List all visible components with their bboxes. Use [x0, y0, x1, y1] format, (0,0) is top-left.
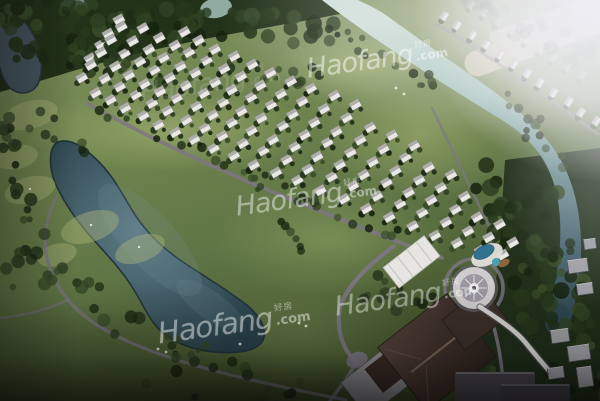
villa: [115, 21, 128, 33]
tree: [292, 235, 299, 242]
tree: [114, 41, 120, 47]
tree: [264, 87, 268, 91]
condo: [576, 366, 594, 388]
villa: [148, 64, 161, 76]
tree: [254, 131, 259, 136]
tree: [306, 15, 322, 31]
tree: [512, 201, 522, 211]
river: [322, 0, 581, 330]
tree: [228, 71, 232, 75]
riverside-villa: [481, 39, 491, 50]
tree: [133, 312, 146, 325]
riverside-villa: [493, 16, 503, 27]
villa: [311, 151, 324, 163]
villa: [133, 55, 146, 67]
tree: [574, 274, 591, 291]
tree: [85, 52, 97, 64]
tree: [88, 95, 94, 101]
tree: [386, 150, 392, 156]
tree: [465, 7, 471, 13]
tree: [108, 69, 114, 75]
tree: [288, 390, 296, 398]
villa: [461, 225, 474, 237]
tree: [189, 356, 200, 367]
tree: [172, 79, 178, 85]
villa: [408, 139, 421, 151]
villa: [197, 87, 210, 99]
watermark-suffix: 好房.com: [247, 61, 282, 86]
tree: [297, 247, 305, 255]
watermark-suffix: 好房.com: [343, 175, 378, 200]
road-junction: [344, 349, 370, 372]
walkway-bridge: [480, 307, 552, 374]
villa: [236, 137, 249, 149]
tree: [124, 29, 129, 34]
villa: [425, 194, 438, 206]
tree: [540, 267, 557, 284]
villa: [286, 108, 299, 120]
tree: [388, 173, 394, 179]
riverside-villa: [467, 30, 477, 41]
tree: [558, 318, 572, 332]
tree: [197, 130, 204, 137]
tree: [208, 52, 213, 57]
tree: [422, 292, 430, 300]
tree: [177, 141, 186, 150]
tree: [585, 40, 598, 53]
tree: [263, 75, 269, 81]
road-plaza-ring: [445, 259, 503, 317]
tree: [550, 185, 565, 200]
villa: [349, 99, 362, 111]
tree: [112, 36, 116, 40]
villa: [208, 43, 221, 55]
tree: [39, 228, 51, 240]
pool-garden: [467, 238, 511, 272]
watermark-cn: 好房: [442, 275, 475, 287]
tree: [329, 134, 335, 140]
tree: [568, 342, 577, 351]
tree: [308, 137, 313, 142]
villa: [264, 99, 277, 111]
tree: [352, 142, 359, 149]
riverside-villa: [535, 77, 545, 88]
condo: [550, 328, 570, 343]
tree: [563, 104, 569, 110]
villa: [291, 174, 304, 186]
tree: [487, 224, 505, 242]
tree: [74, 80, 80, 86]
tree: [506, 33, 511, 38]
tree: [0, 9, 10, 23]
tree: [477, 360, 488, 371]
tree: [339, 120, 346, 127]
villa: [109, 60, 122, 72]
tree: [525, 24, 534, 33]
tree: [359, 35, 366, 42]
tree: [167, 341, 176, 350]
tree: [146, 118, 151, 123]
tree: [497, 375, 510, 388]
tree: [364, 292, 371, 299]
tree: [488, 13, 502, 27]
tree: [128, 111, 132, 115]
riverside-villa: [439, 10, 449, 21]
tree: [339, 134, 344, 139]
tree: [168, 30, 184, 46]
tree: [403, 204, 409, 210]
tree: [162, 80, 169, 87]
tree: [521, 75, 527, 81]
tree: [19, 5, 32, 18]
tree: [23, 0, 34, 7]
tree: [523, 127, 530, 134]
tree: [2, 132, 12, 142]
tree: [481, 2, 493, 14]
tree: [187, 351, 195, 359]
tree: [0, 124, 10, 136]
tree: [366, 165, 371, 170]
tree: [485, 365, 496, 376]
tree: [50, 135, 58, 143]
tree: [470, 183, 482, 195]
tree: [472, 252, 479, 259]
tree: [129, 48, 142, 61]
tree: [118, 44, 133, 59]
tree: [62, 6, 71, 15]
tree: [493, 381, 500, 388]
tree: [435, 310, 442, 317]
villa: [402, 186, 415, 198]
tree: [539, 292, 555, 308]
tree: [496, 257, 502, 263]
tree: [88, 45, 99, 56]
tree: [158, 5, 169, 16]
tree: [197, 143, 207, 153]
tree: [28, 40, 41, 53]
tree: [405, 228, 412, 235]
watermark-suffix: 好房.com: [414, 37, 449, 62]
tree: [199, 76, 203, 80]
figure-speck: [157, 348, 160, 351]
tree: [452, 267, 465, 280]
villa: [266, 134, 279, 146]
tree: [269, 175, 274, 180]
tree: [564, 270, 577, 283]
villa: [444, 169, 457, 181]
tree: [192, 53, 197, 58]
villa: [138, 78, 151, 90]
tree: [390, 185, 395, 190]
tree: [253, 120, 260, 127]
tree: [377, 50, 386, 59]
villa: [179, 80, 192, 92]
watermark-suffix: 好房.com: [273, 300, 311, 327]
tree: [127, 29, 140, 42]
tree: [290, 161, 295, 166]
figure-speck: [395, 87, 398, 90]
tree: [77, 138, 87, 148]
tree: [241, 169, 248, 176]
tree: [0, 143, 9, 154]
villa: [340, 112, 353, 124]
villa: [168, 39, 181, 51]
tree: [103, 42, 109, 48]
villa-band: [74, 14, 520, 264]
tree: [95, 282, 104, 291]
tree: [369, 210, 375, 216]
villa: [330, 125, 343, 137]
tree: [334, 32, 340, 38]
tree: [267, 7, 280, 20]
tree: [144, 105, 151, 112]
tree: [153, 135, 160, 142]
villa: [180, 114, 193, 126]
tree: [69, 55, 77, 63]
tree: [207, 85, 213, 91]
tree: [296, 77, 306, 87]
tree: [502, 225, 507, 230]
tree: [248, 174, 256, 182]
riverside-villa: [495, 49, 505, 60]
tree: [535, 15, 545, 25]
tree: [536, 115, 544, 123]
tree: [399, 172, 404, 177]
tree: [118, 68, 124, 74]
tree: [30, 246, 44, 260]
villa: [370, 190, 383, 202]
tree: [209, 363, 219, 373]
tree: [103, 102, 110, 109]
tree: [199, 108, 204, 113]
tree: [239, 362, 251, 374]
villa: [450, 237, 463, 249]
tree: [178, 88, 185, 95]
tree: [303, 29, 318, 44]
tree: [125, 310, 138, 323]
riverside-villa: [591, 116, 600, 127]
tree: [480, 46, 486, 52]
tree: [307, 125, 313, 131]
tree: [557, 268, 566, 277]
riverside-villa: [466, 0, 476, 10]
tree: [252, 87, 259, 94]
tree: [248, 17, 258, 27]
clubhouse: [341, 236, 570, 401]
tree: [164, 332, 172, 340]
tree: [401, 195, 407, 201]
tree: [454, 175, 460, 181]
tree: [429, 81, 438, 90]
tree: [288, 67, 298, 77]
tree: [521, 195, 535, 209]
tree: [507, 275, 522, 290]
tree: [137, 86, 143, 92]
tree: [480, 1, 489, 10]
far-river-corner: [552, 0, 600, 30]
tree: [10, 1, 25, 16]
tree: [127, 55, 133, 61]
watermarks: Haofang好房.comHaofang好房.comHaofang好房.comH…: [0, 0, 600, 401]
tree: [136, 44, 140, 48]
villa: [104, 34, 117, 46]
villa: [94, 46, 107, 58]
villa: [416, 206, 429, 218]
tree: [575, 360, 587, 372]
tree: [224, 125, 231, 132]
tree: [520, 43, 526, 49]
tree: [163, 94, 169, 100]
tree: [330, 16, 340, 26]
tree: [210, 63, 214, 67]
tree: [434, 190, 440, 196]
tree: [150, 127, 157, 134]
tree: [378, 184, 385, 191]
tree: [586, 319, 596, 329]
tree: [571, 320, 585, 334]
tree: [244, 8, 260, 24]
road-left-winding: [45, 196, 346, 400]
trees: [0, 0, 600, 401]
tree: [294, 82, 299, 87]
tree: [491, 200, 508, 217]
villa: [246, 58, 259, 70]
tree: [439, 225, 444, 230]
tree: [539, 211, 551, 223]
villa: [354, 134, 367, 146]
watermark: Haofang好房.com: [234, 174, 378, 221]
tree: [70, 0, 86, 16]
tree: [100, 36, 107, 43]
tree: [3, 112, 15, 124]
villa: [493, 218, 506, 230]
tree: [277, 218, 285, 226]
condo: [567, 258, 589, 274]
tree: [118, 63, 127, 72]
tree: [81, 26, 92, 37]
villa: [182, 46, 195, 58]
road-river-villas: [436, 24, 598, 134]
tree: [173, 21, 185, 33]
villa: [357, 169, 370, 181]
tree: [574, 282, 589, 297]
tree: [187, 14, 204, 31]
watermark-cn: 好房: [273, 300, 309, 313]
tree: [235, 145, 242, 152]
tree: [5, 123, 15, 133]
tree: [246, 145, 252, 151]
villa: [227, 149, 240, 161]
villa: [112, 14, 125, 26]
villa: [216, 130, 229, 142]
villa: [190, 100, 203, 112]
tree: [12, 42, 23, 53]
villa: [284, 75, 297, 87]
tree: [380, 287, 392, 299]
villa: [422, 161, 435, 173]
tree: [483, 203, 497, 217]
tree: [505, 245, 511, 251]
tree: [466, 37, 473, 44]
tree: [373, 129, 378, 134]
tree: [114, 29, 120, 35]
tree: [395, 138, 400, 143]
tree: [320, 145, 326, 151]
tree: [505, 90, 511, 96]
tree: [317, 124, 322, 129]
tree: [548, 253, 562, 267]
tree: [114, 102, 118, 106]
tree: [237, 159, 241, 163]
road-south-fork: [339, 246, 400, 374]
tree: [172, 356, 179, 363]
tree: [50, 114, 58, 122]
tree: [103, 56, 115, 68]
tree: [146, 72, 153, 79]
tree: [82, 64, 96, 78]
tree: [437, 307, 447, 317]
tree: [287, 10, 301, 24]
tree: [152, 94, 158, 100]
villa: [257, 144, 270, 156]
tree: [218, 85, 223, 90]
tree: [244, 100, 249, 105]
tree: [147, 85, 152, 90]
condo: [576, 282, 593, 295]
tree: [199, 63, 205, 69]
watermark-brand: Haofang: [156, 304, 274, 349]
tree: [292, 78, 303, 89]
riverside-villa: [509, 59, 519, 70]
tree: [224, 62, 235, 73]
tree: [93, 66, 99, 72]
tree: [481, 375, 493, 387]
tree: [542, 144, 550, 152]
villa: [192, 34, 205, 46]
tree: [484, 0, 493, 6]
villa: [325, 171, 338, 183]
tree: [443, 177, 450, 184]
villa: [389, 165, 402, 177]
tree: [449, 303, 460, 314]
tree: [276, 66, 283, 73]
tree: [7, 10, 24, 27]
tree: [136, 118, 142, 124]
tree: [320, 160, 325, 165]
villa: [178, 26, 191, 38]
tree: [538, 284, 547, 293]
tree: [514, 23, 526, 35]
tree: [506, 257, 511, 262]
tree: [327, 112, 331, 116]
watermark-brand: Haofang: [305, 41, 414, 83]
tree: [215, 104, 222, 111]
watermark-cn: 好房: [343, 175, 376, 187]
tree: [104, 48, 119, 63]
tree: [448, 212, 454, 218]
tree: [154, 75, 168, 89]
villa: [276, 120, 289, 132]
tree: [426, 214, 430, 218]
tree: [66, 33, 80, 47]
tree: [452, 28, 457, 33]
tree: [548, 95, 553, 100]
figure-speck: [298, 322, 301, 325]
tree: [77, 6, 88, 17]
villa: [380, 176, 393, 188]
tree: [529, 234, 541, 246]
tree: [17, 4, 33, 20]
